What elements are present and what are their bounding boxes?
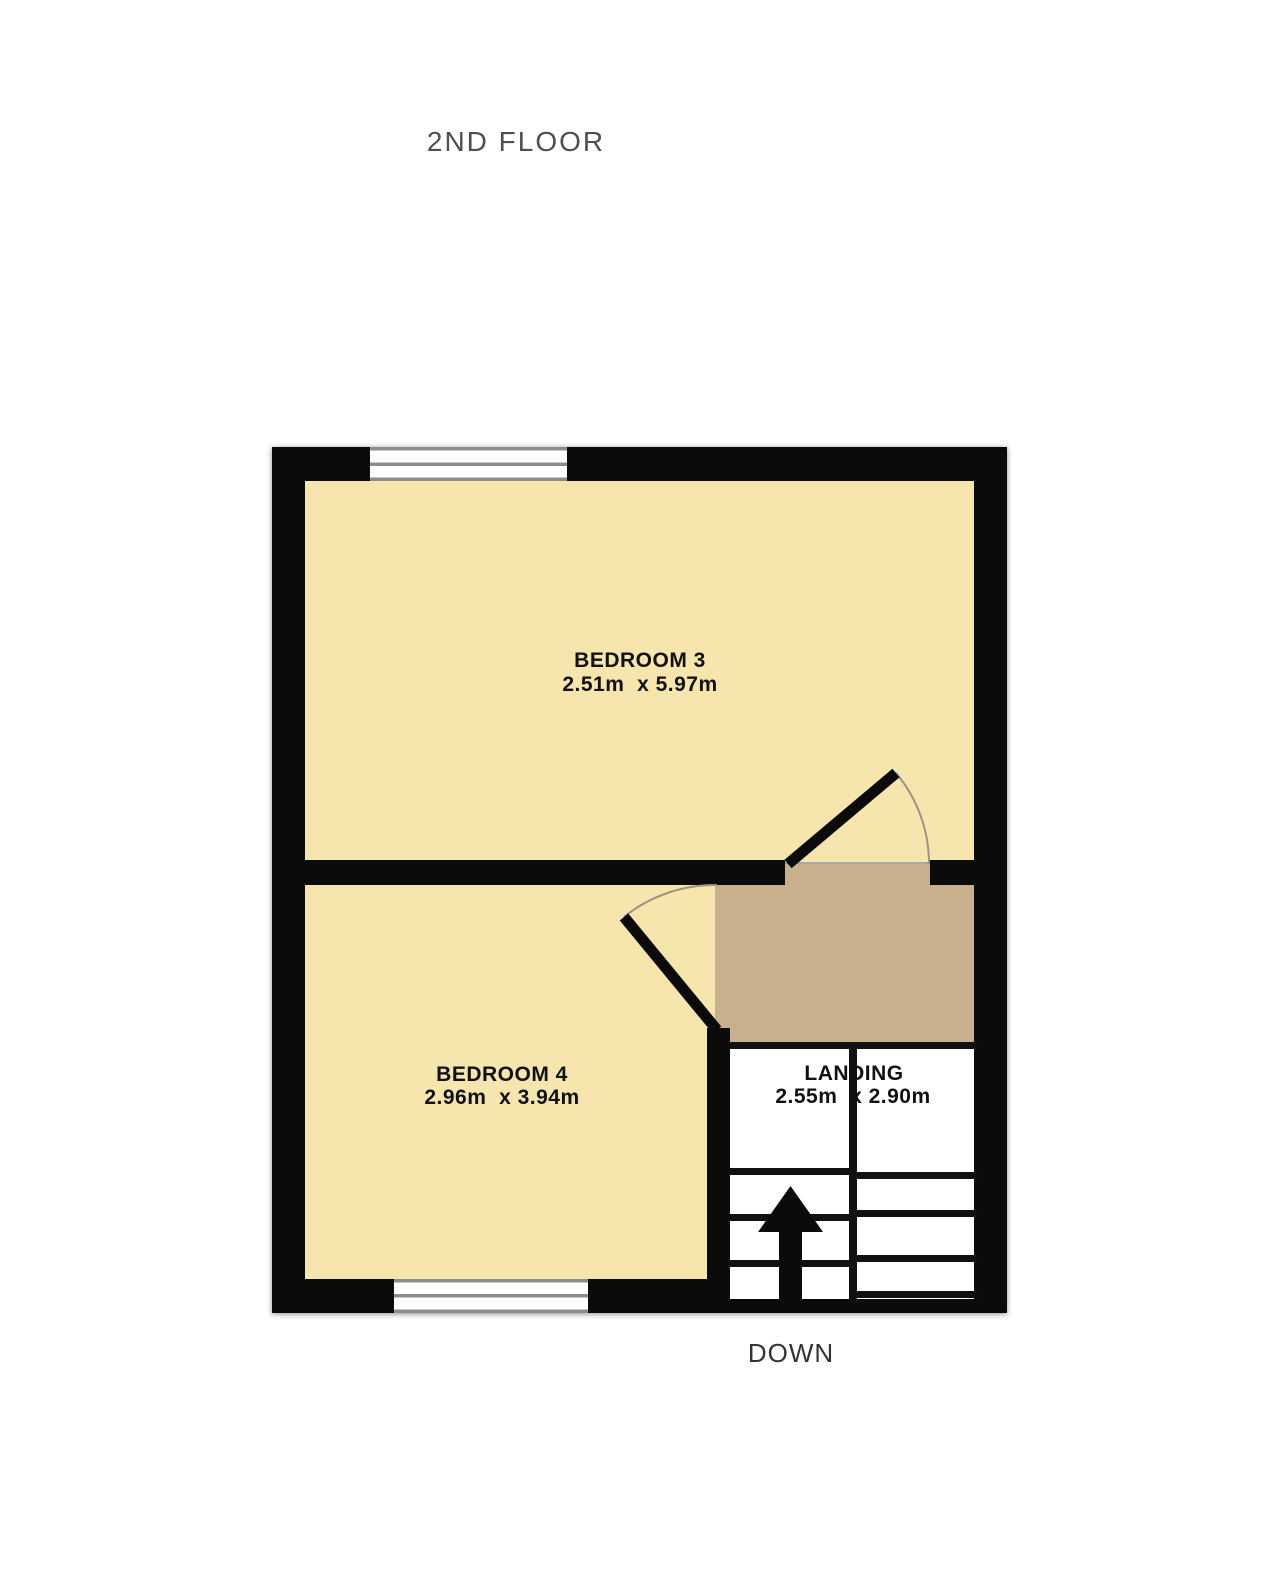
stair-tread-line [857, 1172, 977, 1179]
room-name: LANDING [804, 1062, 903, 1085]
room-dimensions: 2.96m x 3.94m [424, 1086, 579, 1109]
room-dimensions: 2.55m x 2.90m [775, 1085, 930, 1108]
hallway-floor-area [715, 864, 976, 1046]
outer-wall-bottom-stairs-segment [730, 1299, 1007, 1313]
room-name: BEDROOM 4 [436, 1063, 568, 1086]
stairs-down-label: DOWN [748, 1338, 834, 1368]
interior-wall-bedroom3-right-segment [930, 860, 1007, 885]
window-frame-line [370, 463, 567, 467]
window-top [370, 447, 567, 481]
window-frame-line [394, 1294, 588, 1298]
window-frame-line [394, 1279, 588, 1283]
room-name: BEDROOM 3 [574, 649, 706, 672]
bedroom3-label: BEDROOM 3 2.51m x 5.97m [562, 649, 717, 696]
stair-tread-line [730, 1168, 849, 1175]
floor-title: 2ND FLOOR [427, 126, 605, 157]
stair-tread-line [857, 1210, 977, 1217]
window-frame-line [394, 1310, 588, 1314]
bedroom4-label: BEDROOM 4 2.96m x 3.94m [424, 1063, 579, 1109]
stair-tread-line [857, 1255, 977, 1262]
arrow-shaft [779, 1228, 802, 1302]
floor-plan-drawing: 2ND FLOOR [0, 0, 1280, 1586]
window-frame-line [370, 478, 567, 482]
room-dimensions: 2.51m x 5.97m [562, 673, 717, 696]
stair-tread-line [857, 1291, 977, 1298]
window-bottom [394, 1279, 588, 1313]
window-frame-line [370, 447, 567, 451]
interior-wall-bedroom4-landing [707, 1028, 730, 1300]
plan-group: BEDROOM 3 2.51m x 5.97m BEDROOM 4 2.96m … [272, 447, 1007, 1313]
floorplan-page: 2ND FLOOR [0, 0, 1280, 1586]
interior-wall-bedroom3-left-segment [272, 860, 785, 885]
